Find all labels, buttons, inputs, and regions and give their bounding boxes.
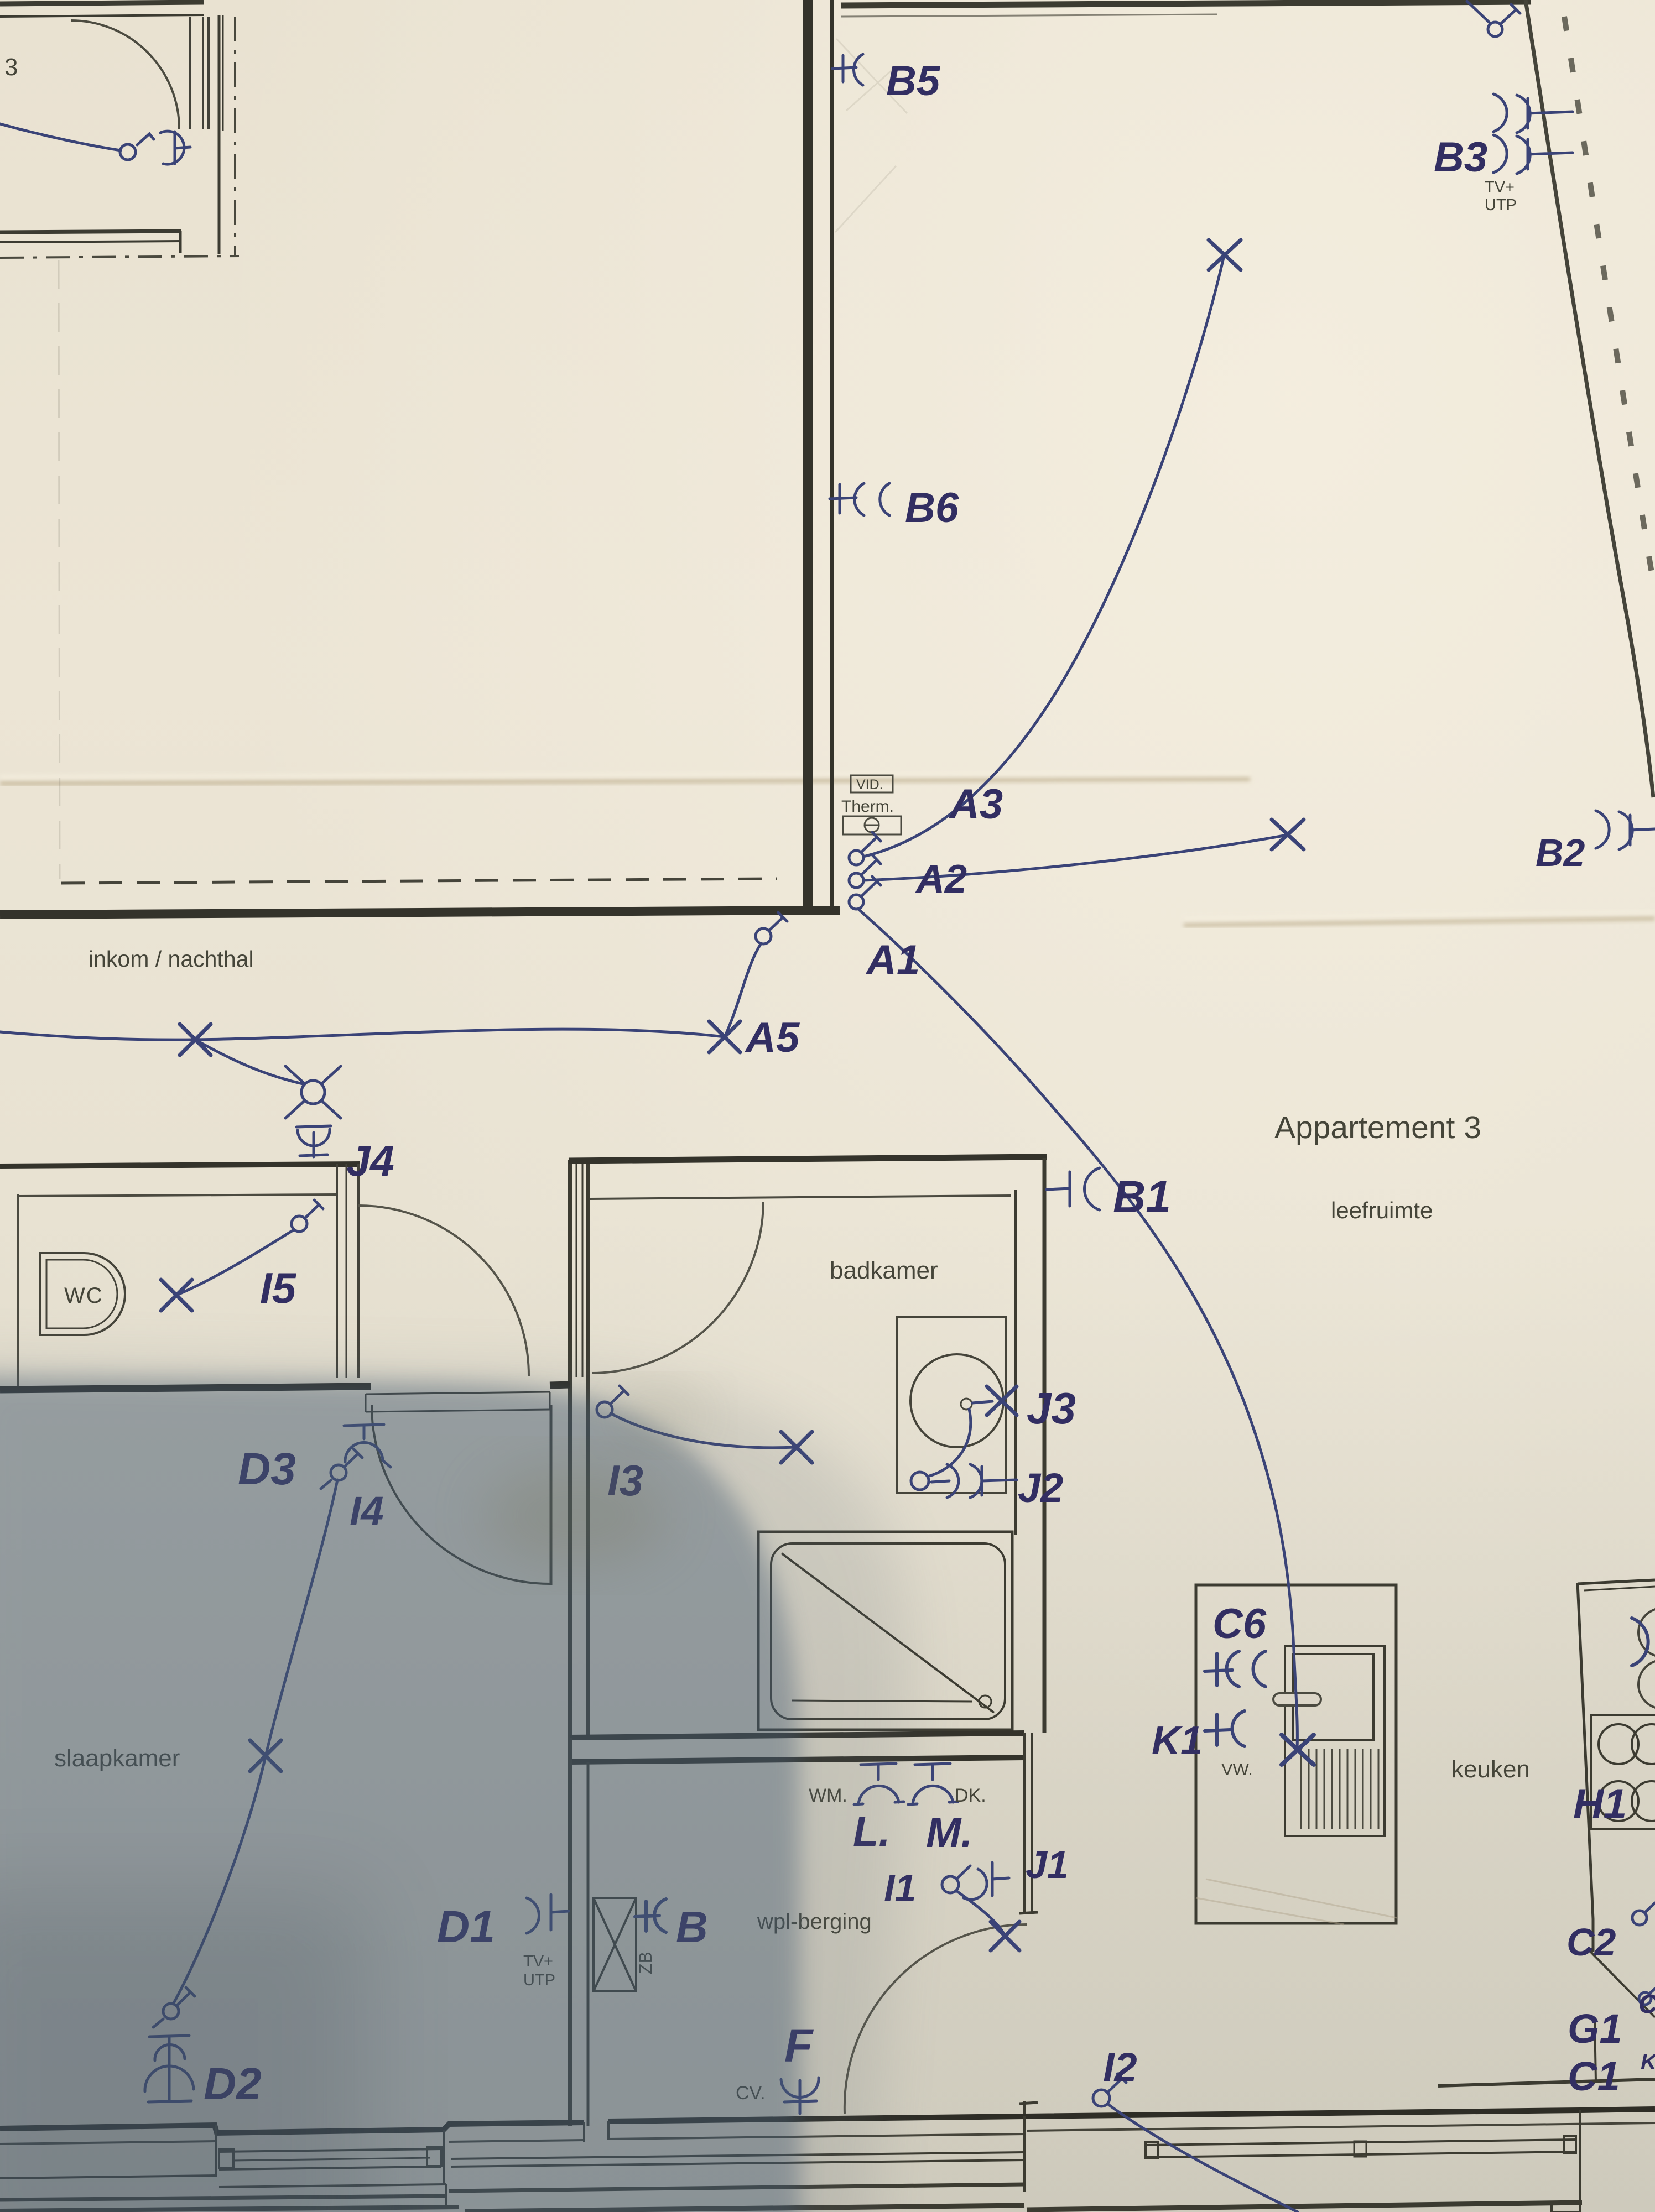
- svg-text:M.: M.: [926, 1809, 972, 1856]
- svg-text:K: K: [1641, 2050, 1655, 2074]
- svg-text:A2: A2: [915, 857, 967, 901]
- svg-text:leefruimte: leefruimte: [1331, 1197, 1433, 1223]
- svg-text:B2: B2: [1536, 831, 1585, 874]
- svg-text:C2: C2: [1566, 1921, 1616, 1964]
- svg-text:C6: C6: [1212, 1600, 1267, 1647]
- svg-text:G1: G1: [1568, 2006, 1622, 2052]
- svg-text:3: 3: [4, 54, 18, 81]
- svg-text:DK.: DK.: [955, 1785, 986, 1806]
- svg-text:VID.: VID.: [856, 777, 883, 792]
- svg-text:I5: I5: [260, 1264, 297, 1312]
- svg-text:A3: A3: [948, 781, 1003, 828]
- svg-text:K1: K1: [1152, 1719, 1203, 1763]
- svg-text:UTP: UTP: [1485, 196, 1517, 214]
- svg-text:badkamer: badkamer: [830, 1257, 938, 1284]
- svg-text:I2: I2: [1103, 2044, 1137, 2090]
- svg-text:J4: J4: [346, 1136, 394, 1185]
- svg-text:inkom / nachthal: inkom / nachthal: [89, 946, 254, 972]
- svg-text:keuken: keuken: [1451, 1756, 1530, 1783]
- svg-text:WC: WC: [64, 1284, 103, 1308]
- svg-text:C1: C1: [1568, 2053, 1620, 2099]
- svg-text:VW.: VW.: [1221, 1760, 1253, 1779]
- svg-text:C: C: [1638, 1990, 1655, 2019]
- svg-text:H1: H1: [1573, 1781, 1627, 1828]
- svg-text:J1: J1: [1026, 1843, 1069, 1886]
- svg-text:J3: J3: [1027, 1384, 1076, 1433]
- svg-text:B1: B1: [1113, 1172, 1171, 1222]
- svg-text:B3: B3: [1434, 134, 1487, 181]
- svg-text:A1: A1: [865, 937, 920, 984]
- svg-text:TV+: TV+: [1485, 179, 1515, 196]
- svg-text:Therm.: Therm.: [841, 797, 894, 816]
- svg-text:B6: B6: [905, 484, 959, 531]
- svg-text:A5: A5: [745, 1014, 800, 1061]
- svg-text:B5: B5: [886, 58, 941, 105]
- svg-text:Appartement 3: Appartement 3: [1274, 1110, 1481, 1145]
- svg-text:J2: J2: [1018, 1465, 1063, 1511]
